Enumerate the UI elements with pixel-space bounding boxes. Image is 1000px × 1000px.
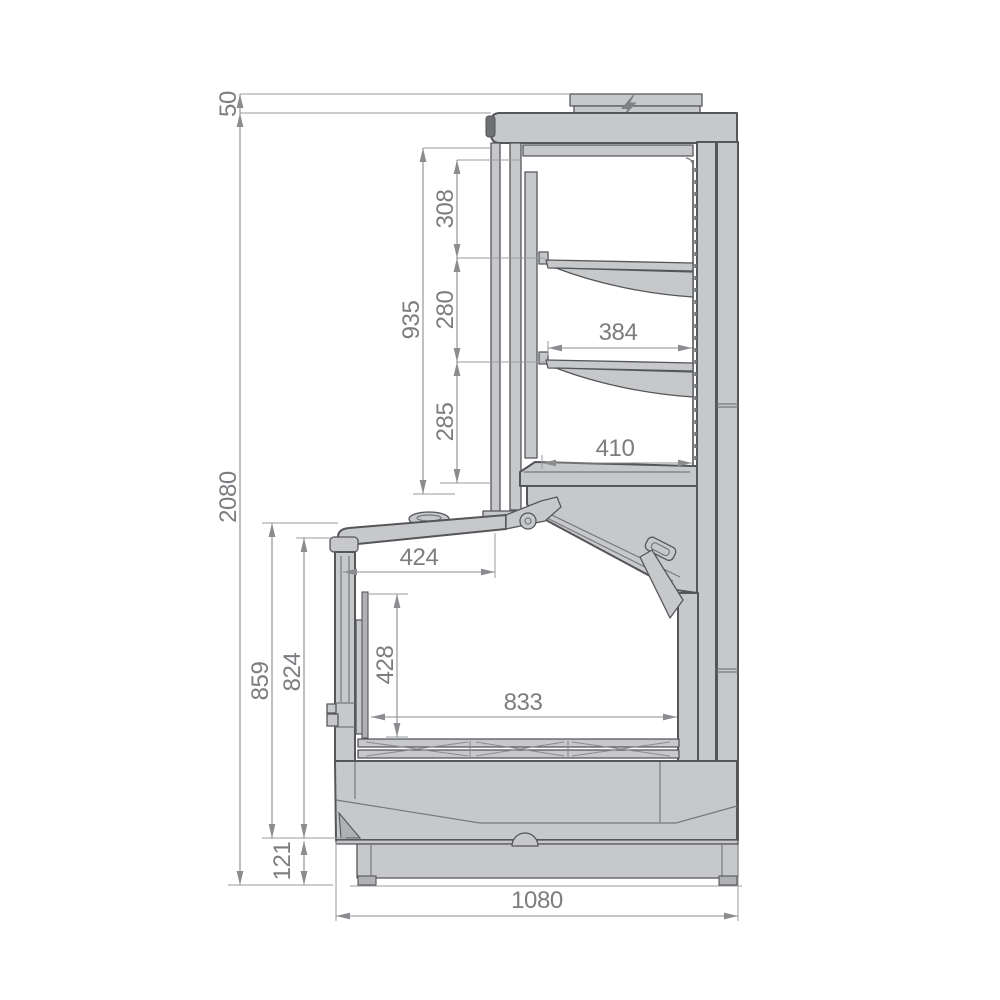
dim-overall-depth: 1080 bbox=[336, 887, 738, 916]
dim-lid-depth: 424 bbox=[343, 544, 495, 572]
dim-overall-height: 2080 bbox=[215, 113, 242, 885]
plinth bbox=[336, 833, 742, 886]
shelf-2 bbox=[539, 352, 693, 397]
technical-drawing-canvas: 50 2080 859 824 121 935 bbox=[0, 0, 1000, 1000]
dim-upper-opening-height: 935 bbox=[398, 148, 425, 494]
dim-label-859: 859 bbox=[247, 662, 274, 701]
dim-label-410: 410 bbox=[596, 435, 635, 462]
front-hinge-icon bbox=[327, 714, 338, 726]
dim-well-height: 428 bbox=[372, 594, 399, 737]
dim-label-824: 824 bbox=[279, 653, 306, 692]
dim-label-384: 384 bbox=[599, 319, 638, 346]
dim-label-424: 424 bbox=[400, 544, 439, 571]
shelf-1 bbox=[539, 252, 693, 297]
shelf-bracket bbox=[556, 268, 693, 297]
front-wall bbox=[327, 537, 358, 761]
shelf-bracket bbox=[556, 368, 693, 397]
dim-front-height-body: 824 bbox=[279, 538, 306, 838]
front-hinge-icon bbox=[327, 704, 336, 713]
dim-label-285: 285 bbox=[432, 403, 459, 442]
glass-hinge-icon bbox=[486, 116, 495, 137]
base bbox=[335, 761, 737, 840]
well-floor bbox=[358, 739, 679, 758]
upper-floor bbox=[520, 462, 697, 486]
floor-slat bbox=[358, 739, 679, 747]
dim-label-308: 308 bbox=[432, 190, 459, 229]
dim-label-1080: 1080 bbox=[511, 887, 563, 914]
floor-rail bbox=[358, 750, 679, 758]
dim-front-height-overall: 859 bbox=[247, 523, 274, 838]
lower-back-wall bbox=[678, 593, 698, 761]
plinth-face bbox=[357, 844, 738, 878]
front-wall-cap bbox=[330, 537, 358, 552]
dim-label-428: 428 bbox=[372, 646, 399, 685]
foot bbox=[358, 876, 376, 885]
dim-label-121: 121 bbox=[269, 842, 296, 881]
well-left-liner bbox=[362, 592, 368, 738]
dim-label-280: 280 bbox=[432, 291, 459, 330]
canopy bbox=[486, 113, 737, 143]
back-outer-panel bbox=[717, 142, 738, 840]
back-inner-column bbox=[697, 142, 716, 761]
glass-outer-pane bbox=[491, 143, 500, 513]
dim-label-833: 833 bbox=[504, 689, 543, 716]
dim-electrical-box-height: 50 bbox=[215, 91, 242, 117]
dim-plinth-height: 121 bbox=[269, 841, 304, 885]
cabinet-structure bbox=[327, 94, 742, 886]
glass-inner-pane bbox=[510, 143, 521, 510]
foot bbox=[719, 876, 737, 885]
cabinet-section-drawing: 50 2080 859 824 121 935 bbox=[0, 0, 1000, 1000]
inner-front-panel bbox=[525, 172, 537, 458]
lid-hinge-icon bbox=[520, 513, 536, 529]
electrical-box-lid bbox=[570, 94, 702, 106]
dim-bottom-shelf-depth: 410 bbox=[542, 435, 692, 463]
dim-label-50: 50 bbox=[215, 91, 242, 117]
corner-bracket bbox=[686, 158, 693, 167]
dim-well-depth: 833 bbox=[371, 689, 677, 717]
dim-shelf-spacing-chain: 308 280 285 bbox=[432, 160, 459, 483]
dim-label-2080: 2080 bbox=[215, 471, 242, 523]
well-left-panels bbox=[356, 592, 368, 738]
dim-label-935: 935 bbox=[398, 301, 425, 340]
ceiling-duct bbox=[523, 145, 693, 156]
front-wall-body bbox=[335, 552, 355, 761]
dim-shelf-depth: 384 bbox=[548, 319, 692, 348]
front-glass bbox=[483, 143, 521, 529]
